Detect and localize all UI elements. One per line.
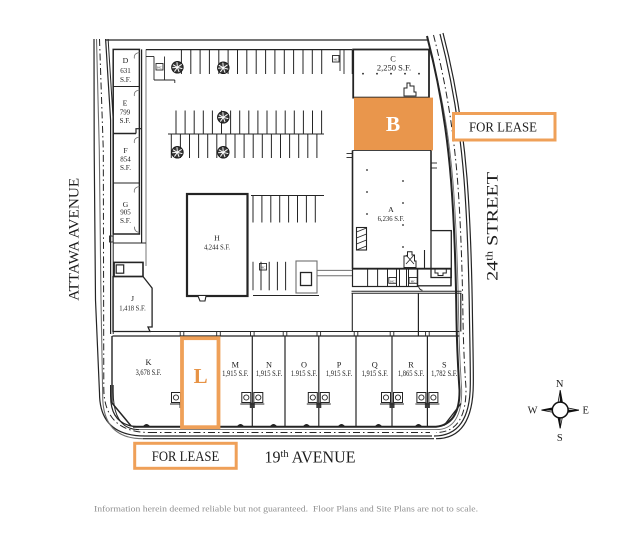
svg-text:HC: HC — [261, 266, 266, 270]
svg-text:1,915 S.F.: 1,915 S.F. — [326, 369, 352, 378]
svg-text:N: N — [556, 379, 564, 390]
svg-text:799: 799 — [120, 108, 131, 117]
svg-text:D: D — [123, 56, 129, 65]
svg-text:1,782 S.F.: 1,782 S.F. — [431, 369, 457, 378]
svg-text:S: S — [557, 433, 563, 444]
svg-text:1,915 S.F.: 1,915 S.F. — [222, 369, 248, 378]
svg-text:H: H — [214, 234, 220, 243]
svg-text:A: A — [388, 205, 394, 214]
svg-text:1,865 S.F.: 1,865 S.F. — [398, 369, 424, 378]
svg-text:1,915 S.F.: 1,915 S.F. — [256, 369, 282, 378]
svg-text:HC: HC — [390, 279, 394, 283]
svg-text:Information herein deemed reli: Information herein deemed reliable but n… — [94, 505, 478, 514]
svg-text:J: J — [131, 294, 134, 303]
svg-text:HC: HC — [157, 66, 162, 70]
svg-text:ATTAWA AVENUE: ATTAWA AVENUE — [66, 178, 82, 301]
svg-text:S.F.: S.F. — [120, 216, 131, 225]
svg-text:B: B — [386, 112, 400, 136]
svg-text:L: L — [194, 364, 208, 388]
svg-text:19th AVENUE: 19th AVENUE — [265, 448, 356, 467]
svg-text:3,678 S.F.: 3,678 S.F. — [136, 368, 162, 377]
svg-text:S.F.: S.F. — [120, 163, 131, 172]
svg-text:S.F.: S.F. — [120, 116, 131, 125]
svg-text:W: W — [528, 406, 538, 417]
svg-text:2,250 S.F.: 2,250 S.F. — [377, 63, 411, 72]
svg-text:24th STREET: 24th STREET — [484, 172, 501, 281]
svg-text:K: K — [146, 358, 152, 367]
svg-text:1.915 S.F.: 1.915 S.F. — [291, 369, 317, 378]
svg-text:HC: HC — [333, 58, 337, 62]
svg-text:E: E — [123, 99, 128, 108]
svg-text:FOR LEASE: FOR LEASE — [152, 449, 220, 465]
svg-text:1,418 S.F.: 1,418 S.F. — [119, 304, 146, 313]
svg-text:HC: HC — [411, 279, 415, 283]
svg-text:1,915 S.F.: 1,915 S.F. — [362, 369, 388, 378]
svg-text:E: E — [582, 406, 588, 417]
svg-text:C: C — [390, 55, 396, 64]
svg-text:S.F.: S.F. — [120, 75, 131, 84]
svg-text:4,244 S.F.: 4,244 S.F. — [204, 243, 230, 252]
svg-text:631: 631 — [120, 66, 131, 75]
svg-text:6,236 S.F.: 6,236 S.F. — [378, 214, 405, 223]
svg-text:FOR LEASE: FOR LEASE — [469, 120, 537, 135]
